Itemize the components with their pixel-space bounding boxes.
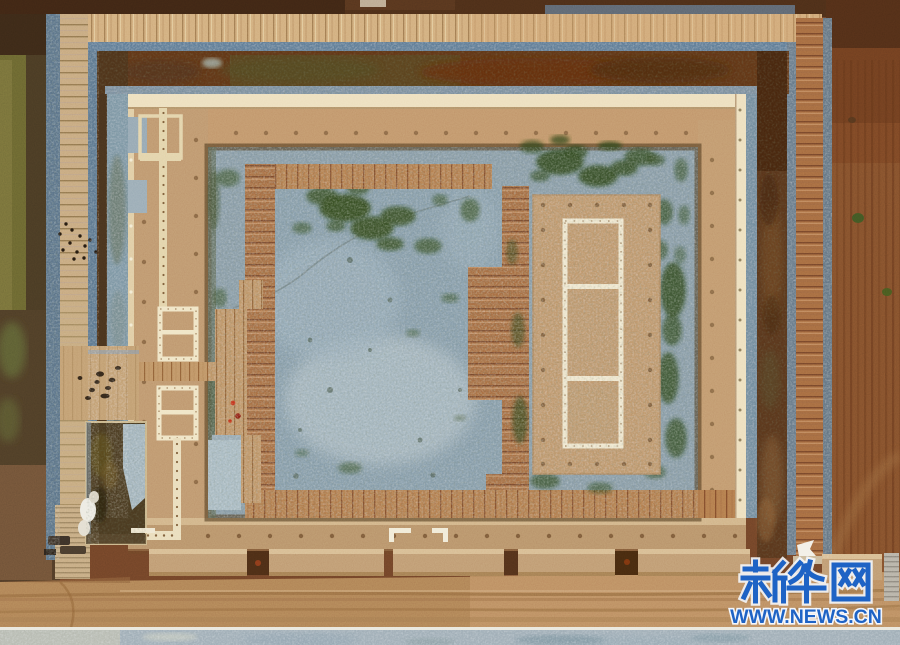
svg-text:WWW.NEWS.CN: WWW.NEWS.CN [730, 606, 882, 628]
